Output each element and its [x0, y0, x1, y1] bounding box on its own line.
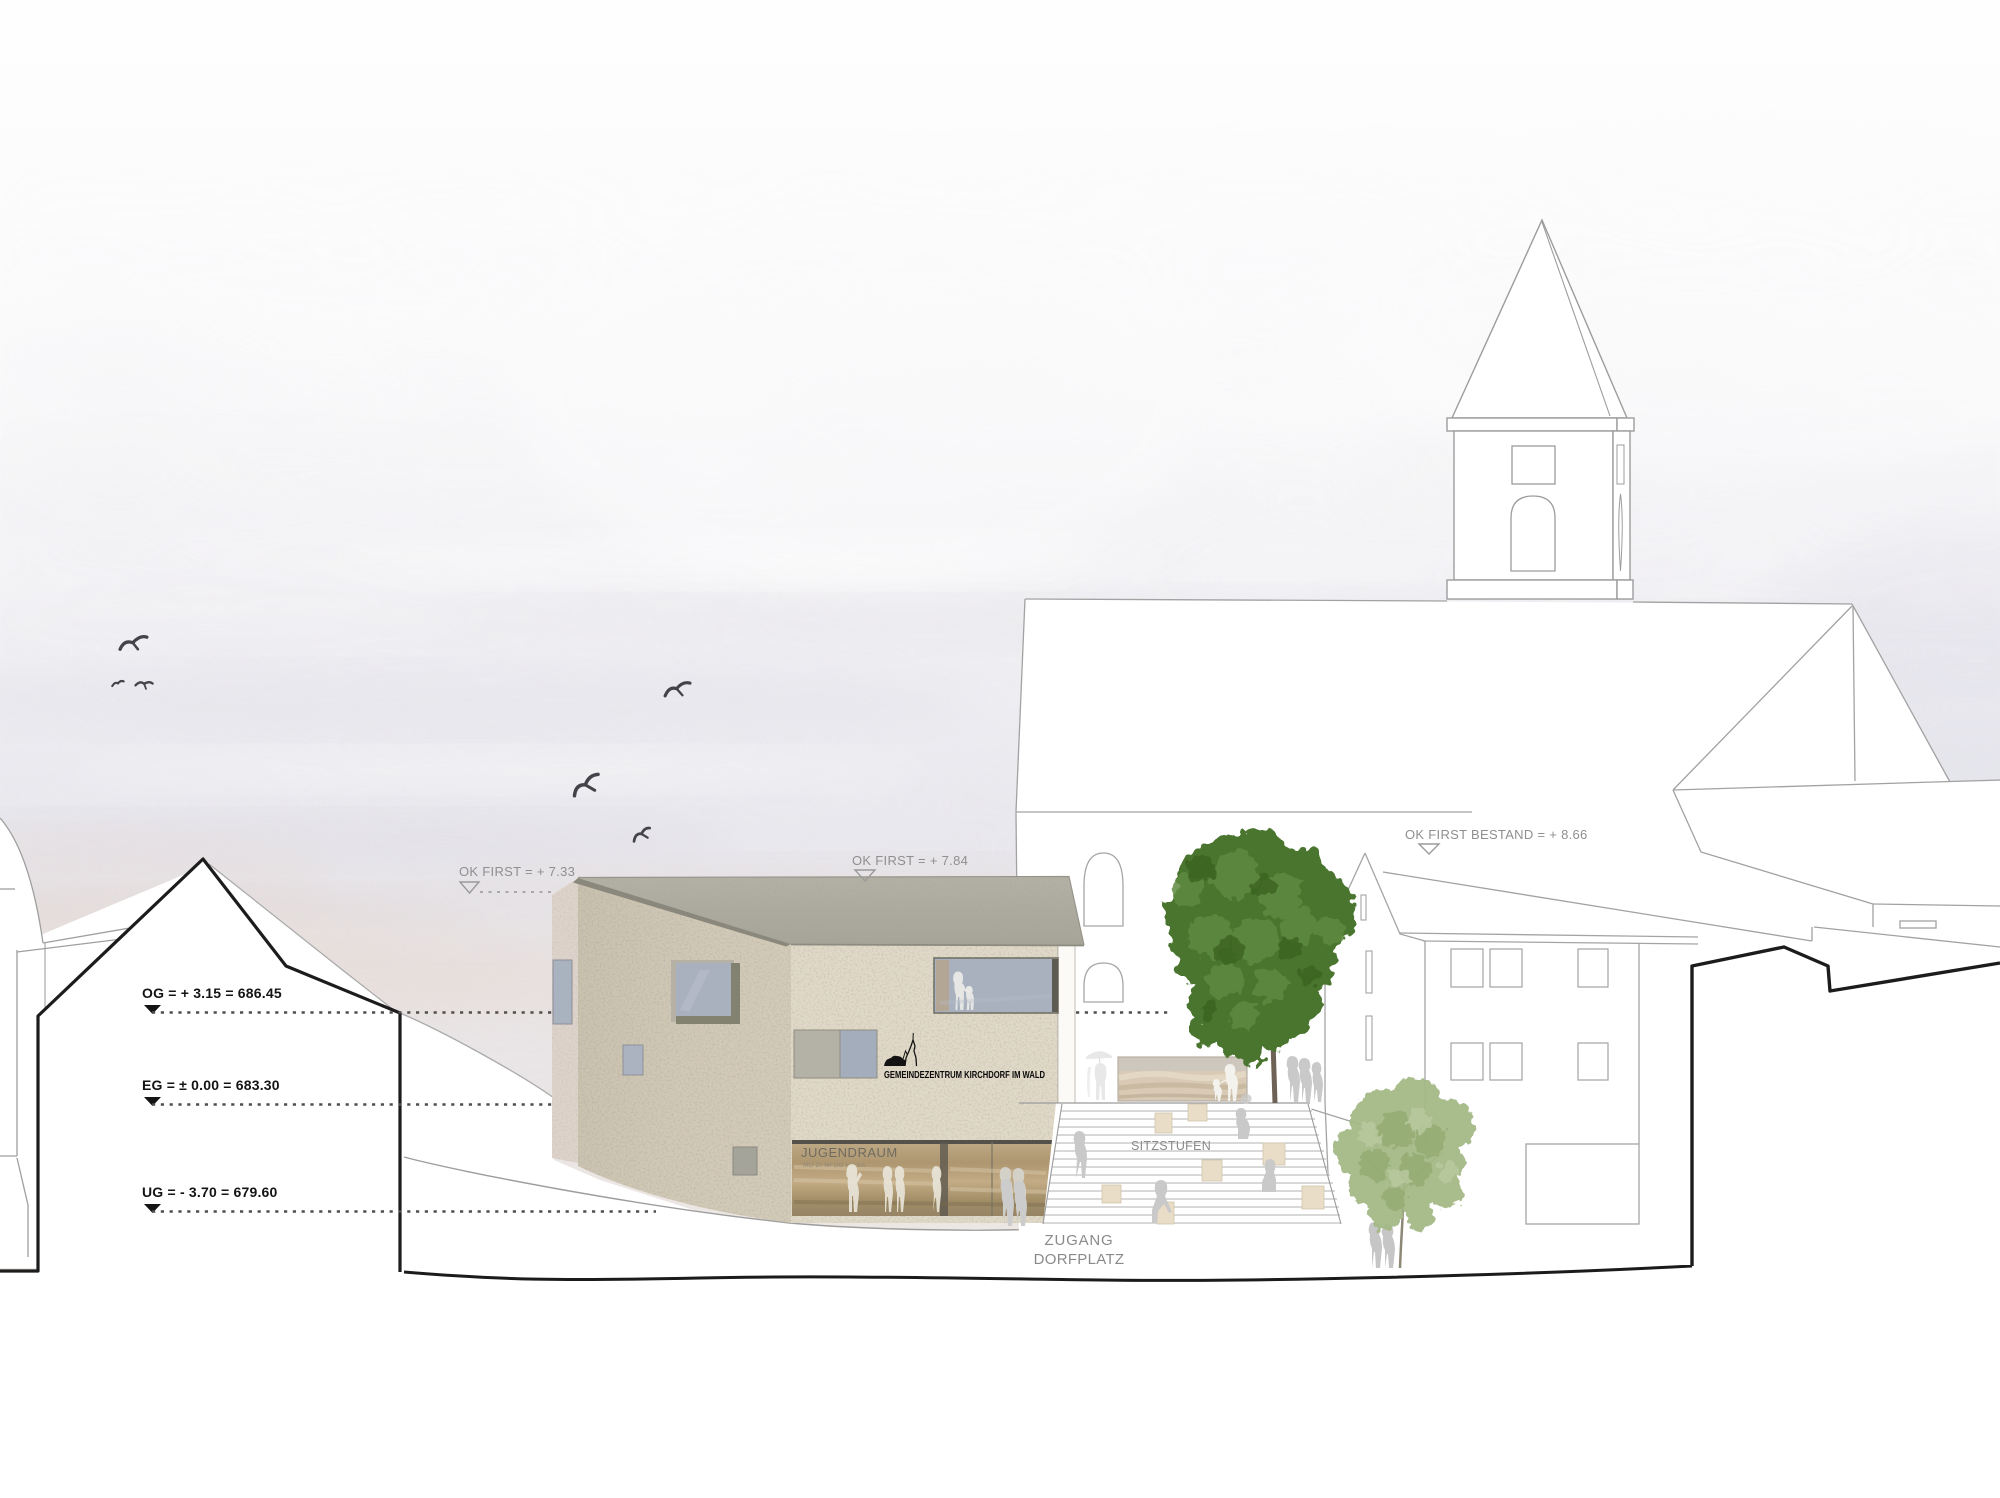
svg-text:SITZSTUFEN: SITZSTUFEN [1131, 1139, 1211, 1153]
svg-text:JUGENDRAUM: JUGENDRAUM [801, 1145, 898, 1160]
svg-text:DORFPLATZ: DORFPLATZ [1034, 1251, 1125, 1268]
svg-text:UG = - 3.70 = 679.60: UG = - 3.70 = 679.60 [142, 1184, 278, 1200]
svg-text:ZUGANG: ZUGANG [1045, 1232, 1114, 1249]
svg-text:OK FIRST = + 7.84: OK FIRST = + 7.84 [852, 853, 968, 868]
svg-text:EG = ± 0.00 = 683.30: EG = ± 0.00 = 683.30 [142, 1077, 280, 1093]
svg-text:OK FIRST = + 7.33: OK FIRST = + 7.33 [459, 864, 575, 879]
svg-text:OK FIRST BESTAND = + 8.66: OK FIRST BESTAND = + 8.66 [1405, 827, 1588, 842]
svg-text:OG = + 3.15 = 686.45: OG = + 3.15 = 686.45 [142, 985, 282, 1001]
svg-text:GEMEINDEZENTRUM KIRCHDORF IM W: GEMEINDEZENTRUM KIRCHDORF IM WALD [884, 1069, 1045, 1081]
